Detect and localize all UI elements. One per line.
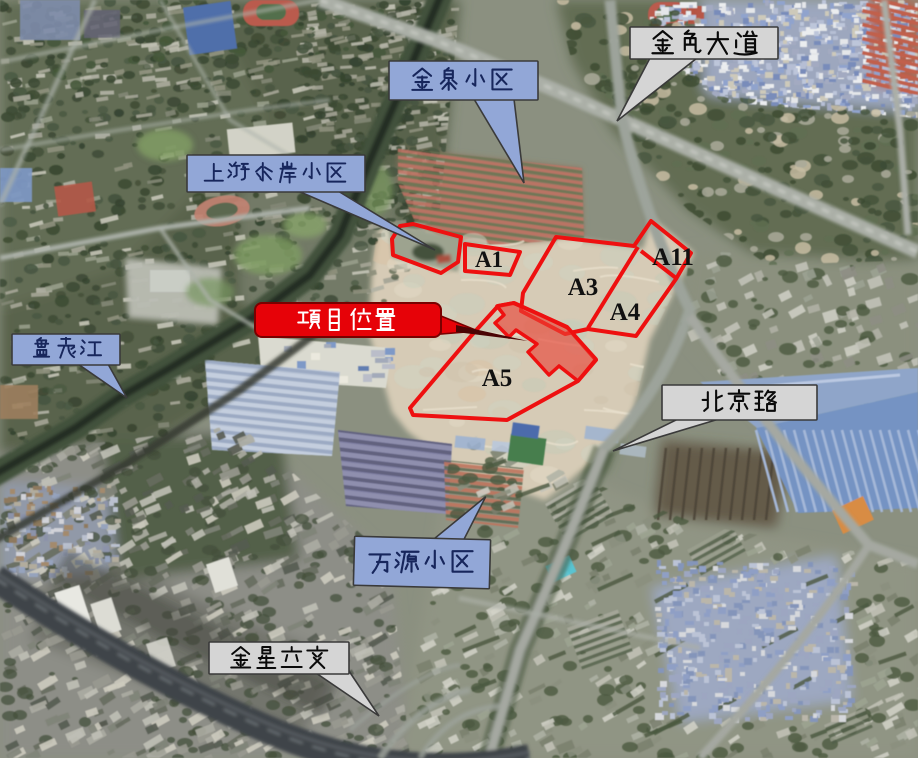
svg-text:A4: A4 bbox=[610, 299, 641, 326]
svg-text:A3: A3 bbox=[568, 274, 599, 301]
svg-text:A5: A5 bbox=[482, 365, 513, 392]
svg-text:A11: A11 bbox=[652, 244, 694, 271]
svg-text:A1: A1 bbox=[475, 247, 503, 272]
